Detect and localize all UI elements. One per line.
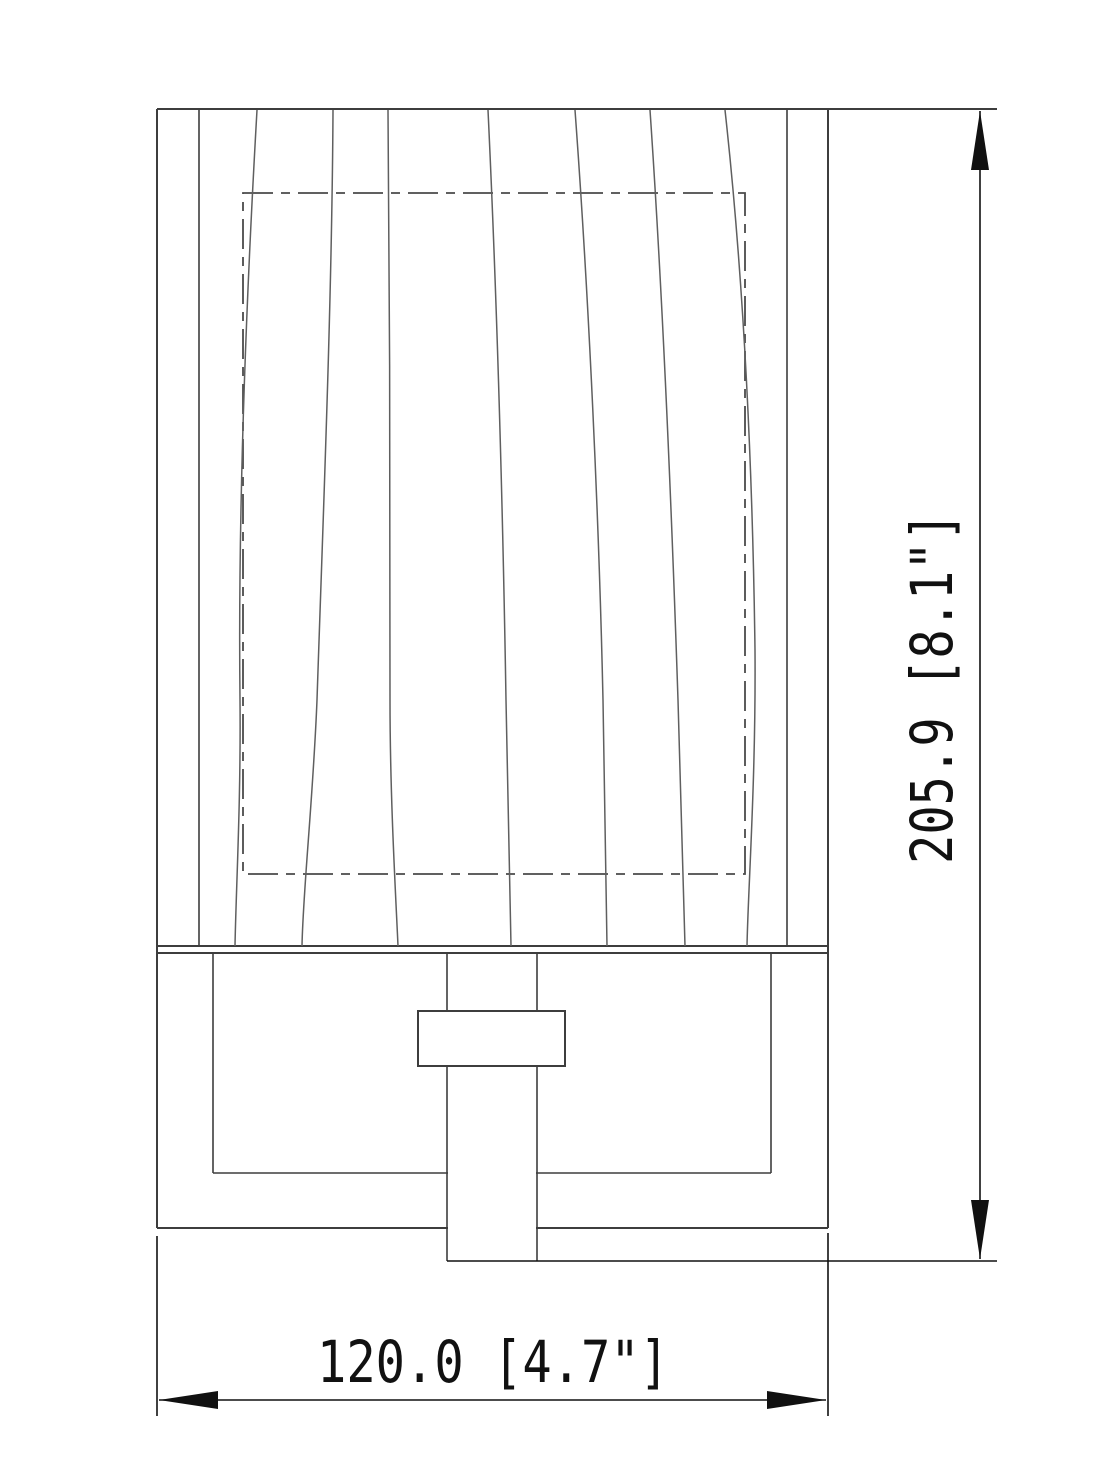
glass-wave-line-5	[575, 110, 607, 946]
sconce-elevation-drawing: 205.9 [8.1"] 120.0 [4.7"]	[0, 0, 1096, 1461]
glass-wave-line-4	[488, 110, 511, 946]
glass-wave-line-6	[650, 110, 685, 946]
glass-wave-line-2	[302, 110, 333, 946]
fixture-outline-group	[157, 109, 997, 1228]
height-dimension-arrow-bottom	[971, 1200, 989, 1259]
width-dimension-arrow-left	[159, 1391, 218, 1409]
glass-wave-line-7	[725, 110, 755, 946]
mounting-stem-group	[447, 953, 537, 1261]
drawing-page: 205.9 [8.1"] 120.0 [4.7"]	[0, 0, 1096, 1461]
width-dimension-arrow-right	[767, 1391, 826, 1409]
glass-wave-pattern-group	[235, 110, 755, 946]
width-dimension-label: 120.0 [4.7"]	[317, 1328, 669, 1396]
height-dimension-arrow-top	[971, 111, 989, 170]
glass-wave-line-3	[388, 110, 398, 946]
hidden-glass-outline	[243, 193, 745, 874]
stem-body-fill	[448, 955, 536, 1260]
height-dimension-label: 205.9 [8.1"]	[898, 512, 966, 864]
glass-wave-line-1	[235, 110, 257, 946]
stem-knob	[418, 1011, 565, 1066]
